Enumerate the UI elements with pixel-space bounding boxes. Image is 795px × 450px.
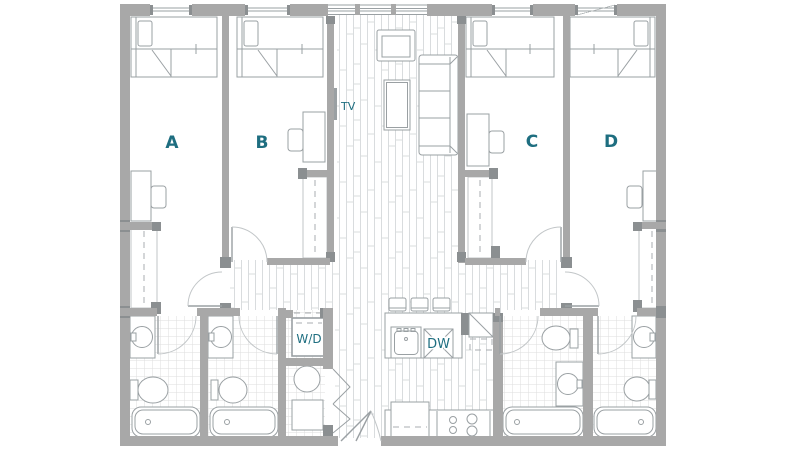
floor-plan: A B C D TV W/D DW	[0, 0, 795, 450]
bed-icon	[131, 17, 217, 77]
furnace-icon	[292, 400, 323, 430]
armchair-icon	[377, 30, 415, 61]
bed-icon	[570, 17, 655, 77]
bathtub-icon	[210, 407, 278, 437]
window	[245, 5, 290, 15]
water-heater-icon	[294, 366, 320, 392]
bedroom-b-label: B	[256, 133, 269, 153]
bed-icon	[237, 17, 323, 77]
desk-icon	[288, 112, 325, 162]
floor-plan-drawing: A B C D TV W/D DW	[0, 0, 795, 450]
bathtub-icon	[594, 407, 656, 437]
bar-stool-icon	[389, 298, 450, 311]
closet-icon	[131, 228, 157, 308]
bedroom-d-door	[565, 272, 599, 306]
sink-icon	[208, 316, 233, 358]
living-window-band	[322, 4, 433, 16]
bedroom-a-door	[188, 272, 222, 306]
closet-icon	[303, 177, 327, 258]
washer-dryer-label: W/D	[296, 332, 321, 346]
bedroom-d-label: D	[604, 132, 618, 152]
closet-icon	[468, 177, 492, 258]
fridge-icon	[391, 402, 429, 437]
tv-label: TV	[340, 100, 356, 113]
bedroom-a	[131, 17, 217, 308]
desk-icon	[467, 114, 504, 166]
bedroom-b	[237, 17, 327, 258]
toilet-icon	[542, 326, 578, 350]
sink-icon	[556, 362, 583, 406]
window	[150, 5, 192, 15]
window	[492, 5, 533, 15]
toilet-icon	[130, 377, 168, 403]
bedroom-c	[466, 17, 554, 258]
toilet-icon	[211, 377, 247, 403]
bedroom-d	[570, 17, 665, 308]
bedroom-b-door	[232, 227, 267, 262]
desk-icon	[131, 171, 166, 221]
sofa-icon	[419, 55, 458, 155]
toilet-icon	[624, 377, 656, 401]
dishwasher-label: DW	[427, 337, 450, 352]
bedroom-c-door	[526, 227, 561, 262]
bed-icon	[466, 17, 554, 77]
sink-icon	[130, 316, 155, 358]
bathtub-icon	[132, 407, 200, 437]
bedroom-c-label: C	[526, 132, 538, 152]
window	[575, 5, 617, 15]
bedroom-a-label: A	[165, 133, 179, 153]
bathtub-icon	[503, 407, 583, 437]
coffee-table-icon	[384, 80, 410, 130]
